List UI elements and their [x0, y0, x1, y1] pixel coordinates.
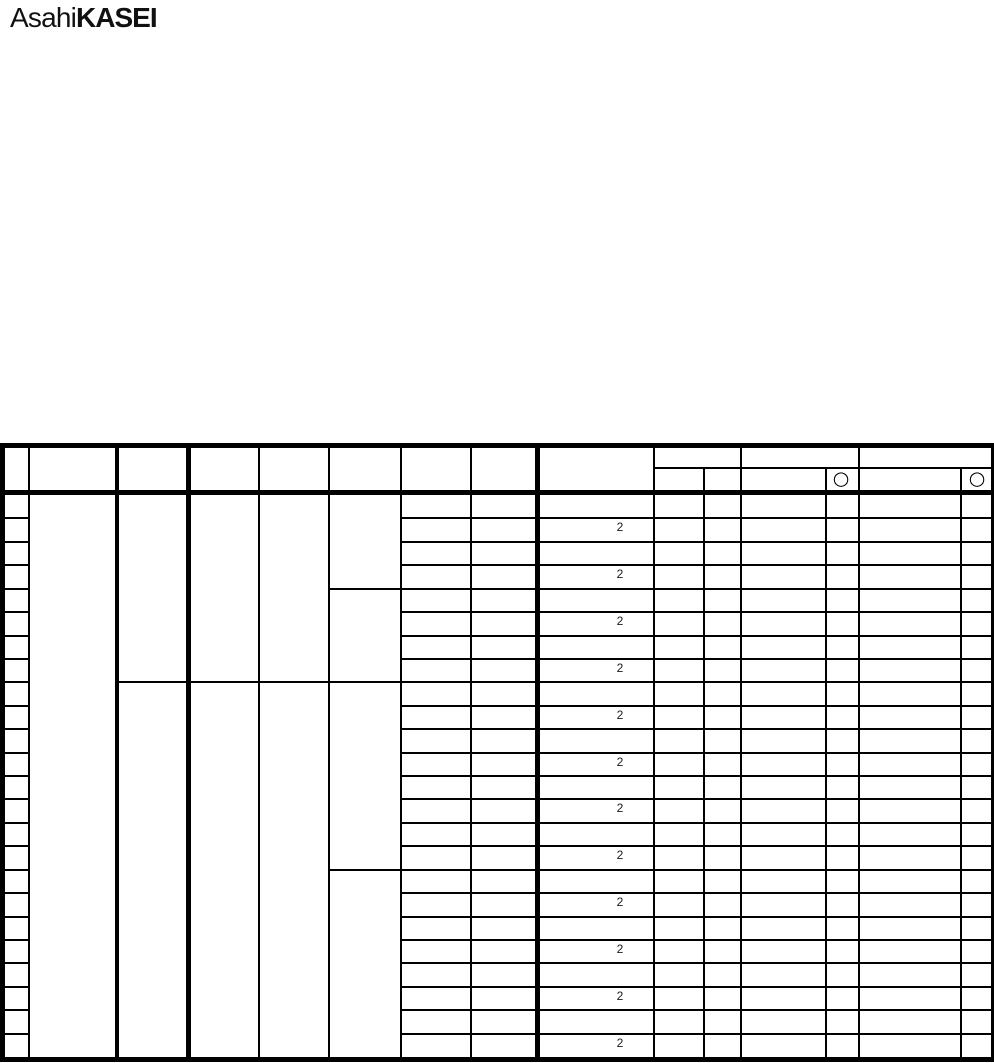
grid-line	[5, 752, 28, 754]
grid-line	[400, 845, 991, 847]
grid-line	[400, 705, 991, 707]
grid-line	[28, 448, 30, 1057]
grid-line	[117, 681, 400, 683]
grid-line	[400, 798, 991, 800]
header-circle-mark-2: ○	[962, 470, 992, 489]
grid-line	[5, 517, 28, 519]
grid-line	[5, 541, 28, 543]
quantity-value: 2	[606, 943, 634, 955]
grid-line	[5, 962, 28, 964]
grid-line	[400, 775, 991, 777]
grid-line	[115, 448, 119, 1057]
grid-line	[258, 448, 260, 1057]
quantity-value: 2	[606, 990, 634, 1002]
grid-line	[400, 916, 991, 918]
grid-line	[5, 490, 991, 495]
grid-line	[400, 869, 991, 871]
asahi-kasei-logo: AsahiKASEI	[10, 4, 157, 32]
logo-text-kasei: KASEI	[76, 2, 157, 33]
header-circle-mark-1: ○	[826, 470, 856, 489]
grid-line	[825, 467, 827, 1057]
grid-line	[5, 869, 28, 871]
grid-line	[400, 517, 991, 519]
grid-line	[5, 681, 28, 683]
grid-line	[653, 467, 991, 469]
grid-line	[400, 892, 991, 894]
quantity-value: 2	[606, 896, 634, 908]
quantity-value: 2	[606, 1037, 634, 1049]
grid-line	[400, 588, 991, 590]
quantity-value: 2	[606, 709, 634, 721]
document-page: AsahiKASEI ○○222222222222	[0, 0, 994, 1063]
grid-line	[5, 705, 28, 707]
grid-line	[5, 588, 28, 590]
grid-line	[400, 635, 991, 637]
quantity-value: 2	[606, 568, 634, 580]
grid-line	[5, 845, 28, 847]
grid-line	[400, 822, 991, 824]
grid-line	[400, 611, 991, 613]
grid-line	[400, 986, 991, 988]
grid-line	[400, 728, 991, 730]
grid-line	[400, 939, 991, 941]
grid-line	[703, 467, 705, 1057]
grid-line	[186, 448, 191, 1057]
quantity-value: 2	[606, 756, 634, 768]
grid-line	[5, 798, 28, 800]
quantity-value: 2	[606, 521, 634, 533]
grid-line	[5, 822, 28, 824]
grid-line	[5, 658, 28, 660]
grid-line	[5, 564, 28, 566]
grid-line	[5, 1009, 28, 1011]
grid-line	[328, 869, 400, 871]
grid-line	[328, 588, 400, 590]
logo-text-asahi: Asahi	[10, 2, 76, 33]
grid-line	[400, 681, 991, 683]
grid-line	[400, 541, 991, 543]
grid-line	[5, 635, 28, 637]
grid-line	[400, 1033, 991, 1035]
grid-line	[5, 916, 28, 918]
grid-line	[5, 728, 28, 730]
grid-line	[400, 658, 991, 660]
grid-line	[960, 467, 962, 1057]
quantity-value: 2	[606, 662, 634, 674]
grid-line	[5, 1033, 28, 1035]
grid-line	[400, 1009, 991, 1011]
quantity-value: 2	[606, 802, 634, 814]
quantity-value: 2	[606, 615, 634, 627]
grid-line	[400, 962, 991, 964]
grid-line	[5, 939, 28, 941]
grid-line	[5, 775, 28, 777]
grid-line	[400, 564, 991, 566]
quantity-value: 2	[606, 849, 634, 861]
grid-line	[400, 752, 991, 754]
grid-line	[328, 448, 330, 1057]
grid-line	[5, 986, 28, 988]
grid-line	[5, 611, 28, 613]
grid-line	[5, 892, 28, 894]
